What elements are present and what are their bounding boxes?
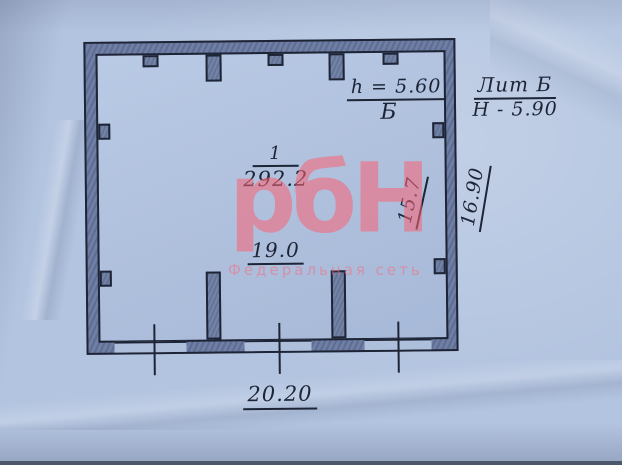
pilaster: [432, 122, 444, 138]
ceiling-height-letter: Б: [347, 100, 431, 125]
pilaster: [205, 55, 221, 82]
window-opening: [114, 341, 186, 353]
pilaster: [100, 271, 112, 287]
pilaster: [267, 54, 283, 66]
exterior-depth-dimension: 16.90: [456, 162, 492, 233]
room-area: 292.2: [233, 166, 319, 192]
photo-edge-shadow: [0, 461, 622, 465]
interior-width-dimension: 19.0: [240, 238, 310, 266]
pilaster: [328, 53, 344, 80]
ceiling-height-note: h = 5.60: [347, 75, 431, 101]
exterior-width-dimension: 20.20: [240, 381, 320, 410]
pilaster: [142, 55, 158, 67]
building-height-label: Н - 5.90: [465, 98, 565, 122]
floor-plan-photo: 1 292.2 h = 5.60 Б Лит Б Н - 5.90 19.0 1…: [0, 0, 622, 465]
litera-label: Лит Б: [471, 73, 559, 100]
drawing-scene: 1 292.2 h = 5.60 Б Лит Б Н - 5.90 19.0 1…: [0, 0, 622, 465]
room-label: 1 292.2: [232, 143, 318, 192]
pilaster: [434, 258, 446, 274]
pilaster: [382, 53, 398, 65]
pillar: [331, 270, 347, 338]
pillar: [206, 272, 222, 340]
room-number: 1: [252, 144, 299, 167]
pilaster: [98, 124, 110, 140]
